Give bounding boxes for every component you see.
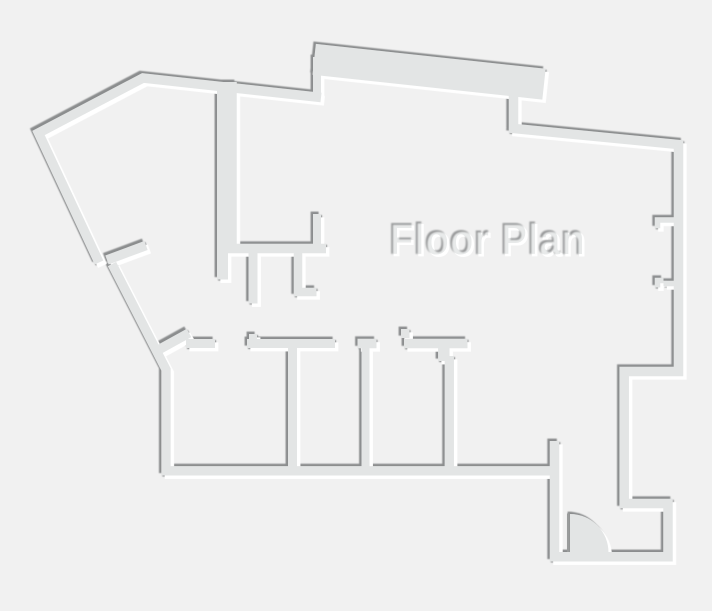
svg-text:Floor Plan: Floor Plan xyxy=(389,215,585,264)
